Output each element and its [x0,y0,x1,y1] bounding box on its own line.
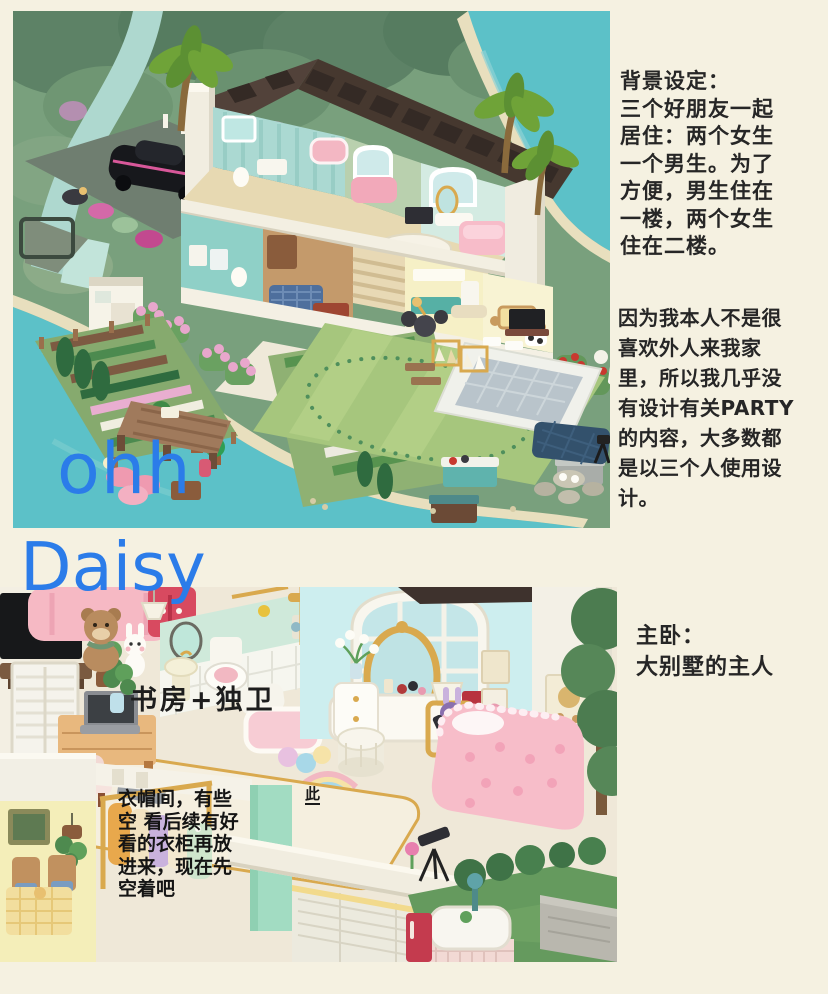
master-bedroom-screenshot [0,587,617,962]
dining-nook [0,799,96,962]
dining-table [6,887,72,935]
watermark-ohh: ohh [57,434,192,504]
pink-bed [432,703,584,830]
vanity-mirror [437,187,457,215]
pink-sofa [351,177,397,203]
tv [405,207,433,224]
flower-decor [405,842,419,856]
upstairs-bathtub [311,139,347,163]
stairs [353,247,405,313]
master-bedroom-note: 主卧： 大别墅的主人 [636,621,821,683]
cloakroom-note: 衣帽间，有些 空 看后续有好 看的衣柜再放 进来，现在先 空着吧 [118,788,278,901]
red-fridge [406,913,432,962]
bathroom-mirror [171,623,201,659]
page: { "page": { "canvas_color": "#f5f1e1", "… [0,0,828,994]
screenshot-logo: 此 [305,786,320,805]
background-setting-note: 背景设定： 三个好朋友一起 居住：两个女生 一个男生。为了 方便，男生住在 一楼… [620,68,825,261]
roof-corner [398,587,532,604]
watermark-daisy: Daisy [20,534,206,601]
master-bedroom-illustration [0,587,617,962]
duck-decor [258,605,270,617]
party-note: 因为我本人不是很 喜欢外人来我家 里，所以我几乎没 有设计有关PARTY 的内容… [618,303,826,513]
half-wall [0,755,96,801]
vanity-stool [338,728,384,777]
study-label: 书房+独卫 [130,678,276,717]
